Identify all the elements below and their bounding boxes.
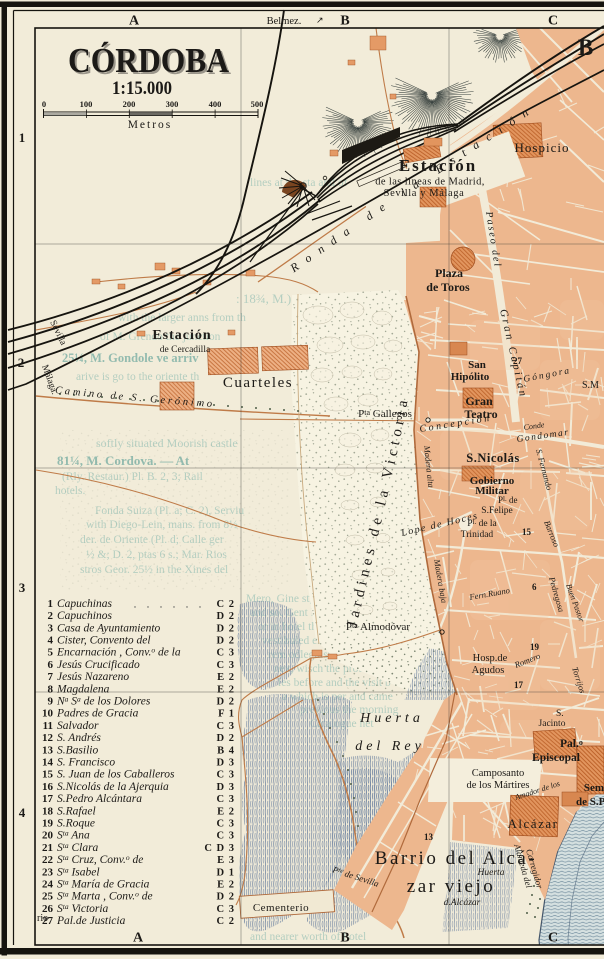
svg-text:3: 3: [48, 622, 54, 634]
svg-text:400: 400: [209, 99, 222, 109]
svg-text:D 2: D 2: [217, 697, 235, 708]
svg-text:1: 1: [19, 130, 26, 145]
svg-text:1: 1: [48, 598, 54, 610]
svg-text:24: 24: [42, 879, 54, 891]
svg-text:Sta Cruz, Conv.o de: Sta Cruz, Conv.o de: [57, 854, 143, 867]
svg-text:200: 200: [123, 99, 136, 109]
svg-text:Barrio del Alcá-: Barrio del Alcá-: [375, 848, 537, 869]
svg-text:6: 6: [532, 582, 537, 592]
svg-text:B: B: [340, 931, 349, 946]
svg-text:S.Basilio: S.Basilio: [57, 744, 98, 756]
svg-text:Hipólito: Hipólito: [451, 371, 490, 383]
svg-text:E 2: E 2: [217, 806, 235, 817]
svg-text:S.Nicolás: S.Nicolás: [466, 451, 519, 465]
svg-text:D 3: D 3: [217, 782, 235, 793]
svg-text:9: 9: [48, 696, 54, 708]
svg-text:C 3: C 3: [217, 770, 235, 781]
svg-text:19: 19: [42, 818, 54, 830]
svg-text:A: A: [129, 14, 140, 29]
svg-text:C 3: C 3: [217, 721, 235, 732]
svg-text:E 2: E 2: [217, 880, 235, 891]
svg-text:13: 13: [42, 744, 54, 756]
svg-text:Padres de Gracia: Padres de Gracia: [56, 708, 139, 720]
svg-text:16: 16: [42, 781, 54, 793]
svg-text:del Rey: del Rey: [355, 739, 425, 754]
svg-text:Sta Ana: Sta Ana: [57, 829, 90, 842]
svg-text:D 2: D 2: [217, 892, 235, 903]
svg-text:Estación: Estación: [152, 328, 211, 343]
svg-text:Magdalena: Magdalena: [56, 683, 110, 695]
svg-text:25: 25: [42, 891, 54, 903]
svg-text:Capuchinas: Capuchinas: [57, 598, 112, 610]
svg-text:D 1: D 1: [217, 867, 235, 878]
svg-text:Pal.de Justicia: Pal.de Justicia: [56, 915, 126, 927]
svg-text:Cementerio: Cementerio: [253, 902, 309, 914]
svg-text:Hosp.de: Hosp.de: [473, 653, 508, 664]
svg-text:27: 27: [42, 915, 54, 927]
svg-text:de los Mártires: de los Mártires: [467, 780, 530, 791]
svg-text:San: San: [468, 359, 486, 371]
svg-text:8: 8: [48, 683, 54, 695]
svg-text:Episcopal: Episcopal: [532, 752, 580, 764]
svg-text:de Cercadilla: de Cercadilla: [160, 345, 211, 355]
svg-text:18: 18: [42, 805, 54, 817]
svg-text:Sem: Sem: [584, 782, 604, 794]
svg-text:300: 300: [166, 99, 179, 109]
svg-text:Jacinto: Jacinto: [539, 719, 566, 729]
svg-text:D 2: D 2: [217, 636, 235, 647]
svg-text:Sta Marta , Conv.o de: Sta Marta , Conv.o de: [57, 890, 153, 903]
svg-text:C 3: C 3: [217, 819, 235, 830]
svg-text:15: 15: [42, 769, 54, 781]
svg-text:F 1: F 1: [218, 709, 235, 720]
svg-text:20: 20: [42, 830, 54, 842]
svg-text:11: 11: [43, 720, 53, 732]
svg-text:Salvador: Salvador: [57, 720, 99, 732]
svg-text:2: 2: [48, 610, 54, 622]
svg-text:B: B: [578, 35, 593, 60]
svg-text:14: 14: [42, 757, 54, 769]
svg-text:D 2: D 2: [217, 611, 235, 622]
svg-text:Na Sa de los Dolores: Na Sa de los Dolores: [56, 695, 151, 708]
svg-text:Plaza: Plaza: [435, 266, 463, 280]
svg-text:C: C: [548, 931, 558, 946]
svg-text:Huerta: Huerta: [359, 711, 424, 726]
svg-text:3: 3: [19, 580, 26, 595]
svg-text:Alcázar: Alcázar: [508, 816, 559, 831]
svg-text:Cuarteles: Cuarteles: [223, 375, 293, 391]
svg-text:S.Roque: S.Roque: [57, 818, 95, 830]
svg-text:C D 3: C D 3: [204, 843, 235, 854]
svg-text:zar viejo: zar viejo: [407, 876, 495, 897]
svg-text:12: 12: [42, 732, 54, 744]
svg-text:D 2: D 2: [217, 623, 235, 634]
svg-text:S.: S.: [556, 709, 564, 719]
svg-text:15: 15: [522, 527, 532, 537]
svg-text:S. Francisco: S. Francisco: [57, 757, 115, 769]
svg-text:Capuchinos: Capuchinos: [57, 610, 112, 622]
svg-text:Sta María de Gracia: Sta María de Gracia: [57, 878, 150, 891]
svg-text:22: 22: [42, 854, 54, 866]
svg-text:C 3: C 3: [217, 831, 235, 842]
svg-text:7: 7: [48, 671, 54, 683]
svg-text:C 3: C 3: [217, 794, 235, 805]
svg-text:S. Andrés: S. Andrés: [57, 732, 101, 744]
svg-text:Huerta: Huerta: [477, 868, 505, 878]
svg-text:2: 2: [18, 355, 25, 370]
svg-text:Hospicio: Hospicio: [515, 140, 570, 155]
svg-text:27: 27: [513, 356, 523, 366]
svg-text:arive is go to the oriente th: arive is go to the oriente th: [76, 371, 200, 383]
svg-text:D 3: D 3: [217, 758, 235, 769]
svg-text:de Toros: de Toros: [426, 280, 470, 294]
svg-text:B 4: B 4: [217, 745, 235, 756]
svg-text:Belmez.: Belmez.: [267, 16, 302, 27]
svg-text:5: 5: [48, 647, 54, 659]
svg-text:S.Nicolás de la Ajerquia: S.Nicolás de la Ajerquia: [57, 781, 169, 793]
svg-text:A: A: [133, 931, 144, 946]
svg-text:D 2: D 2: [217, 733, 235, 744]
svg-text:Metros: Metros: [128, 119, 173, 131]
svg-text:C 2: C 2: [217, 599, 235, 610]
svg-text:↗: ↗: [316, 15, 324, 25]
svg-text:Encarnación , Conv.o de la: Encarnación , Conv.o de la: [56, 646, 181, 659]
svg-text:S. Juan de los Caballeros: S. Juan de los Caballeros: [57, 769, 175, 781]
svg-text:13: 13: [424, 832, 434, 842]
svg-text:17: 17: [514, 680, 524, 690]
svg-text:with the larger anns from th: with the larger anns from th: [118, 312, 246, 324]
svg-text:Jesús Nazareno: Jesús Nazareno: [57, 671, 129, 683]
svg-text:100: 100: [80, 99, 93, 109]
svg-text:10: 10: [42, 708, 54, 720]
svg-text:0: 0: [42, 99, 46, 109]
svg-text:19: 19: [530, 642, 540, 652]
svg-text:4: 4: [19, 805, 26, 820]
svg-text:C 3: C 3: [217, 904, 235, 915]
svg-text:Trinidad: Trinidad: [461, 530, 494, 540]
svg-text:Casa de Ayuntamiento: Casa de Ayuntamiento: [57, 622, 161, 634]
svg-text:E 3: E 3: [217, 855, 235, 866]
svg-text:S.Pedro Alcántara: S.Pedro Alcántara: [57, 793, 142, 805]
svg-text:500: 500: [251, 99, 264, 109]
svg-text:Gran: Gran: [465, 394, 493, 408]
svg-text:B: B: [340, 14, 349, 29]
svg-text:S.Felipe: S.Felipe: [481, 506, 512, 516]
svg-text:21: 21: [42, 842, 53, 854]
svg-text:C 3: C 3: [217, 648, 235, 659]
svg-text:C: C: [548, 14, 558, 29]
svg-text:4: 4: [48, 635, 54, 647]
svg-text:C 3: C 3: [217, 660, 235, 671]
svg-text:17: 17: [42, 793, 54, 805]
svg-text:S.M: S.M: [582, 380, 599, 391]
svg-text:Camposanto: Camposanto: [472, 768, 525, 779]
svg-text:S.Rafael: S.Rafael: [57, 805, 96, 817]
svg-text:CÓRDOBA: CÓRDOBA: [68, 40, 230, 80]
svg-text:C 2: C 2: [217, 916, 235, 927]
svg-text:1:15.000: 1:15.000: [112, 78, 172, 99]
svg-text:E 2: E 2: [217, 684, 235, 695]
svg-text:Agudos: Agudos: [472, 665, 505, 676]
svg-text:6: 6: [48, 659, 54, 671]
svg-text:E 2: E 2: [217, 672, 235, 683]
svg-text:26: 26: [42, 903, 54, 915]
svg-text:de S.Pel: de S.Pel: [576, 796, 604, 808]
svg-text:Jesús Crucificado: Jesús Crucificado: [57, 659, 140, 671]
svg-text:23: 23: [42, 866, 54, 878]
svg-text:Pl. de: Pl. de: [498, 495, 517, 505]
svg-text:d.Alcázar: d.Alcázar: [444, 898, 481, 908]
svg-text:Cister, Convento del: Cister, Convento del: [57, 635, 151, 647]
